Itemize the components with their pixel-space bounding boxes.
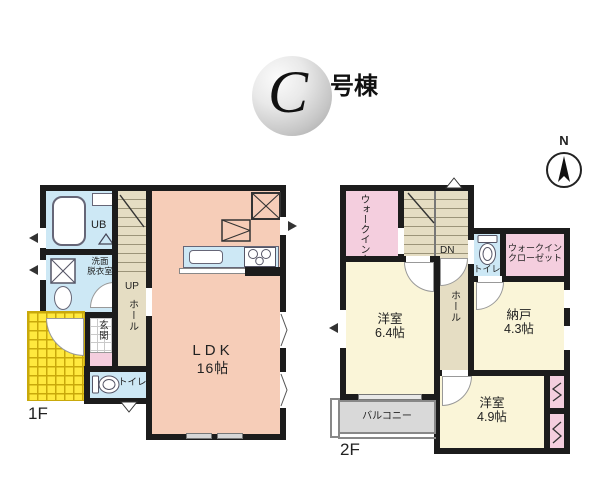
window-slot	[564, 326, 570, 350]
building-suffix: 号棟	[330, 73, 378, 101]
hall-ldk-opening	[146, 288, 152, 316]
floor-plan-page: C 号棟 N UB 洗面 脱衣室 UP ホール 玄関 トイレ	[0, 0, 600, 500]
casement-window-icon	[281, 312, 289, 348]
compass-north-label: N	[546, 134, 582, 149]
toilet-icon-2f	[476, 235, 500, 267]
room-ldk	[146, 185, 286, 440]
stairs-direction-line	[118, 191, 146, 243]
kitchen-wall-stub	[245, 267, 286, 276]
storage-label: 納戸 4.3帖	[468, 308, 570, 337]
window-slot	[564, 290, 570, 308]
hanger-pipe-icon	[551, 381, 563, 405]
window-slot	[40, 228, 46, 248]
window-slot	[280, 217, 286, 235]
hanger-pipe-icon	[551, 420, 563, 446]
toilet-vent-triangle-icon	[120, 402, 138, 413]
door-opening	[478, 276, 502, 282]
washing-machine-icon	[50, 258, 76, 284]
window-slot	[40, 260, 46, 280]
counter-ledge	[179, 268, 246, 274]
compass-needle-icon	[548, 154, 580, 186]
toilet-2f-label: トイレ	[470, 264, 504, 274]
roof-vent-triangle-icon	[445, 177, 463, 189]
door-opening	[406, 256, 430, 262]
stairs-direction-line	[406, 191, 436, 251]
floor1-label: 1F	[28, 404, 48, 424]
stairs-dn-label: DN	[440, 245, 470, 257]
window-arrow-icon	[29, 265, 38, 275]
kitchen-sink-icon	[189, 250, 223, 264]
sliding-window	[186, 433, 212, 439]
bedroom-49-label: 洋室 4.9帖	[440, 396, 544, 425]
floor2-label: 2F	[340, 440, 360, 460]
genkan-step	[90, 352, 112, 366]
wic-door-opening	[398, 228, 404, 254]
stove-icon	[244, 247, 276, 267]
window-arrow-icon	[29, 233, 38, 243]
ldk-label: LDK	[146, 342, 280, 359]
sliding-window	[217, 433, 243, 439]
window-arrow-icon	[288, 221, 297, 231]
compass-icon	[546, 152, 582, 188]
wic-left-label: ウォークインクローゼット	[357, 194, 370, 256]
genkan-label: 玄関	[96, 320, 107, 346]
window-arrow-icon	[329, 323, 338, 333]
building-letter: C	[268, 58, 308, 127]
title-sphere: C	[252, 56, 332, 136]
bathtub-icon	[52, 196, 86, 246]
hall-2f-label: ホール	[448, 290, 460, 334]
balcony: バルコニー	[338, 400, 436, 434]
ldk-size-label: 16帖	[146, 360, 280, 376]
balcony-label: バルコニー	[340, 411, 434, 423]
toilet-door-opening	[468, 240, 474, 264]
room-label-ub: UB	[91, 219, 106, 232]
hall-1f-label: ホール	[126, 299, 138, 343]
door-opening	[442, 370, 468, 376]
bath-shelf-icon	[92, 193, 114, 206]
washbasin-icon	[54, 286, 72, 310]
cupboard-icon	[221, 219, 251, 242]
refrigerator-icon	[251, 192, 281, 220]
bedroom-64-label: 洋室 6.4帖	[340, 312, 440, 341]
window-slot	[340, 310, 346, 348]
toilet-1f-label: トイレ	[118, 378, 147, 389]
casement-window-icon	[281, 372, 289, 408]
wic-right-label: ウォークイン クローゼット	[502, 243, 568, 264]
balcony-rail-bottom	[338, 437, 436, 439]
room-wic-left	[340, 185, 404, 262]
closet-divider-wall	[544, 408, 570, 414]
